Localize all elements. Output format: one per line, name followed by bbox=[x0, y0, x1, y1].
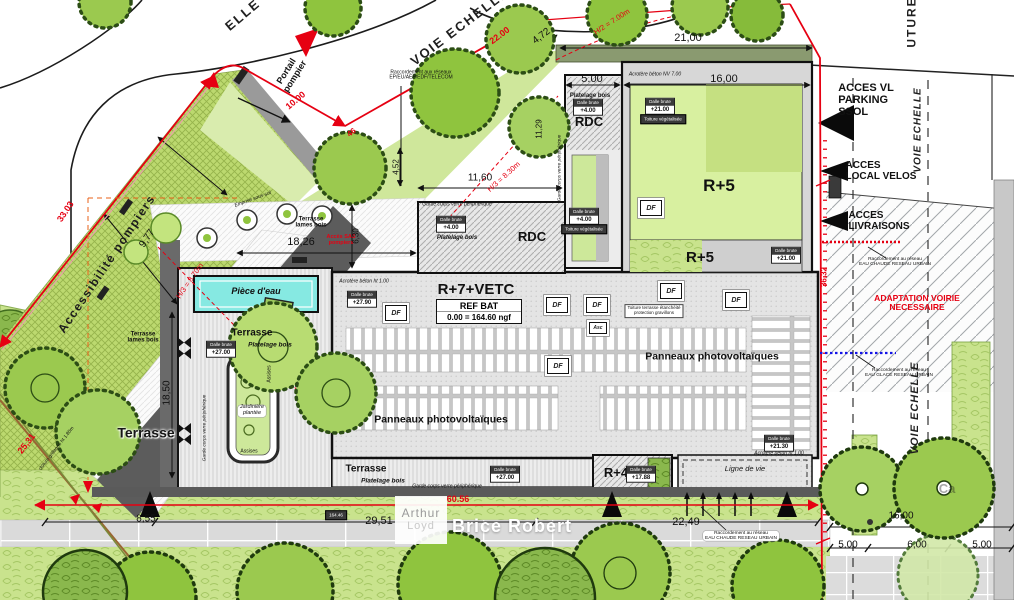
plan-label-64: Acrotère béton ht 1.00 bbox=[339, 279, 388, 284]
dim-46: 46 bbox=[346, 127, 358, 139]
level-badge-4: Dalle brute+4.00 bbox=[573, 99, 603, 116]
piece-eau: Pièce d'eau bbox=[231, 287, 280, 297]
level-badge-value: +21.00 bbox=[646, 105, 674, 113]
building-rdc-strip: RDC bbox=[575, 115, 603, 129]
labels-layer: ELLEVOIE ECHELLEUTUREVOIE ECHELLEVOIE EC… bbox=[0, 0, 1014, 600]
level-badge-value: +21.00 bbox=[772, 254, 800, 262]
plan-label-22: 11,60 bbox=[468, 174, 492, 185]
plan-label-21: 16,00 bbox=[710, 74, 738, 86]
level-badge-0: Dalle brute+27.90 bbox=[347, 291, 377, 308]
plan-label-67: Platelage bois bbox=[437, 235, 477, 241]
raccordement-eau-chaude-right: Raccordement au réseau EAU CHAUDE RESEAU… bbox=[859, 257, 931, 267]
df-box-3: DF bbox=[586, 297, 608, 313]
plan-label-32: 16,00 bbox=[888, 512, 913, 523]
plan-label-18: 21,00 bbox=[674, 33, 702, 45]
level-badge-value: +4.00 bbox=[437, 223, 465, 231]
plan-label-26: 18,26 bbox=[287, 237, 315, 249]
raccordement-eau-glace: Raccordement au réseau EAU GLACE RESEAU … bbox=[865, 368, 933, 378]
plan-label-13: H/2 = 7.00m bbox=[593, 7, 632, 36]
plan-label-23: 11,29 bbox=[536, 119, 545, 138]
level-badge-value: +27.00 bbox=[207, 348, 235, 356]
building-rdc-center: RDC bbox=[518, 230, 546, 244]
level-badge-8: Dalle brute+21.30 bbox=[764, 435, 794, 452]
level-badge-9: Dalle brute+27.00 bbox=[490, 466, 520, 483]
plan-label-52: Terrasse lames bois bbox=[127, 332, 158, 345]
df-box-7: Asc bbox=[589, 322, 607, 334]
level-badge-value: +17.88 bbox=[627, 473, 655, 481]
site-plan: REF BAT 0.00 = 164.60 ngf Arthur Loyd Br… bbox=[0, 0, 1014, 600]
level-badge-3: Dalle brute+21.00 bbox=[771, 247, 801, 264]
dim-25-31: 25,31 bbox=[16, 432, 38, 456]
plan-label-57: Garde corps verre périphérique bbox=[422, 202, 491, 207]
ligne-de-vie: Ligne de vie bbox=[725, 465, 765, 473]
plan-label-29: 8,55 bbox=[136, 515, 155, 526]
plan-label-30: 29,51 bbox=[365, 516, 393, 528]
chip-1: Toiture végétalisée bbox=[561, 224, 607, 234]
pv-label-left: Panneaux photovoltaïques bbox=[374, 414, 508, 425]
building-r4: R+4 bbox=[604, 466, 628, 480]
df-box-5: DF bbox=[547, 358, 569, 374]
acces-livraisons: ACCES LIVRAISONS bbox=[848, 211, 909, 233]
street-voie-echelle-right-2: VOIE ECHELLE bbox=[910, 362, 922, 455]
plan-label-58: Garde corps verre périphérique bbox=[412, 484, 481, 489]
level-badge-6: Dalle brute+4.00 bbox=[436, 216, 466, 233]
accessibilite-pompiers: Accessibilité pompiers bbox=[56, 193, 158, 336]
plan-label-60: Garde corps verre périphérique bbox=[202, 395, 207, 462]
plan-label-14: H/3 = 8.70m bbox=[175, 262, 205, 300]
plan-label-63: Acrotère béton NV 7.00 bbox=[629, 72, 681, 77]
brice-robert-watermark: Brice Robert bbox=[452, 516, 572, 537]
arthur-loyd-logo-line2: Loyd bbox=[395, 520, 447, 532]
plan-label-27: 9,77 bbox=[138, 228, 158, 250]
plan-label-54: Jardinière plantée bbox=[238, 405, 266, 417]
plan-label-59: Garde corps verre périphérique bbox=[557, 135, 562, 202]
dim-60-56: 60.56 bbox=[447, 495, 470, 505]
plan-label-19: 4,72 bbox=[531, 27, 553, 47]
plan-label-35: 5.00 bbox=[972, 541, 991, 552]
plan-label-31: 22,49 bbox=[672, 517, 700, 529]
df-box-2: DF bbox=[546, 297, 568, 313]
acces-sas-pompiers: Accès SAS pompiers bbox=[326, 235, 355, 247]
level-badge-7: Dalle brute+17.88 bbox=[626, 466, 656, 483]
df-box-0: DF bbox=[640, 200, 662, 216]
plan-label-20: 5.00 bbox=[581, 74, 602, 86]
street-voie-echelle-top: VOIE ECHELLE bbox=[408, 0, 512, 69]
pv-label-right: Panneaux photovoltaïques bbox=[645, 351, 779, 362]
level-badge-value: +21.30 bbox=[765, 442, 793, 450]
df-box-1: DF bbox=[385, 305, 407, 321]
dim-33-03: 33.03 bbox=[56, 200, 77, 224]
df-box-4: DF bbox=[660, 283, 682, 299]
dim-10-00: 10.00 bbox=[284, 90, 308, 112]
plan-label-49: Platelage bois bbox=[361, 477, 405, 484]
arthur-loyd-logo-line1: Arthur bbox=[395, 506, 447, 520]
acces-local-velos: ACCES LOCAL VELOS bbox=[846, 161, 917, 183]
plan-label-34: 6,00 bbox=[907, 541, 926, 552]
building-r7-vetc: R+7+VETC bbox=[438, 282, 515, 298]
level-badge-1: Dalle brute+27.00 bbox=[206, 341, 236, 358]
acces-vl-parking-ssol: ACCES VL PARKING SSOL bbox=[838, 83, 894, 119]
plan-label-46: Terrasse bbox=[232, 329, 273, 340]
plan-label-25: 6,30 bbox=[353, 228, 362, 244]
dim-22-00: 22.00 bbox=[488, 25, 512, 46]
plan-label-76: Ca bbox=[939, 482, 956, 496]
plan-label-65: Acrotère béton ht 1.00 bbox=[754, 451, 803, 456]
arthur-loyd-logo: Arthur Loyd bbox=[395, 496, 447, 544]
street-voie-future: UTURE bbox=[906, 0, 919, 48]
adaptation-voirie: ADAPTATION VOIRIE NECESSAIRE bbox=[874, 294, 960, 312]
chip-2: 164.46 bbox=[325, 510, 347, 520]
dim-36-32: 36.32 bbox=[821, 267, 830, 287]
plan-label-62: clôture grillagée ht 1.80m bbox=[38, 426, 75, 472]
building-r5: R+5 bbox=[703, 177, 735, 195]
plan-label-51: Terrasse lames bois bbox=[295, 217, 326, 230]
plan-label-68: Toiture terrasse étanchéité protection g… bbox=[624, 304, 683, 318]
level-badge-value: +4.00 bbox=[574, 106, 602, 114]
level-badge-5: Dalle brute+4.00 bbox=[569, 208, 599, 225]
raccordement-reseaux: Raccordement aux réseaux EP/EU/AEP/EDF/T… bbox=[389, 71, 452, 82]
level-badge-2: Dalle brute+21.00 bbox=[645, 98, 675, 115]
level-badge-value: +4.00 bbox=[570, 215, 598, 223]
level-badge-value: +27.90 bbox=[348, 298, 376, 306]
plan-label-33: 5.00 bbox=[838, 541, 857, 552]
level-badge-value: +27.00 bbox=[491, 473, 519, 481]
street-voie-echelle-right-1: VOIE ECHELLE bbox=[914, 87, 925, 172]
plan-label-55: Assises bbox=[267, 365, 272, 382]
plan-label-56: Assises bbox=[240, 449, 257, 454]
terrasse-big: Terrasse bbox=[117, 425, 174, 440]
df-box-6: DF bbox=[725, 292, 747, 308]
portail-pompier-label: Portail pompier bbox=[273, 54, 308, 94]
chip-0: Toiture végétalisée bbox=[640, 114, 686, 124]
plan-label-15: H/3 = 8.30m bbox=[486, 160, 522, 194]
building-r5-low: R+5 bbox=[686, 250, 714, 266]
street-elle: ELLE bbox=[223, 0, 264, 34]
plan-label-48: Terrasse bbox=[346, 465, 387, 476]
plan-label-24: 4,52 bbox=[393, 159, 402, 175]
plan-label-47: Platelage bois bbox=[248, 341, 292, 348]
raccordement-eau-chaude-bottom: Raccordement au réseau EAU CHAUDE RESEAU… bbox=[703, 531, 779, 541]
plan-label-61: Emprise sous-sol bbox=[234, 191, 272, 209]
plan-label-28: 18,50 bbox=[163, 380, 174, 405]
